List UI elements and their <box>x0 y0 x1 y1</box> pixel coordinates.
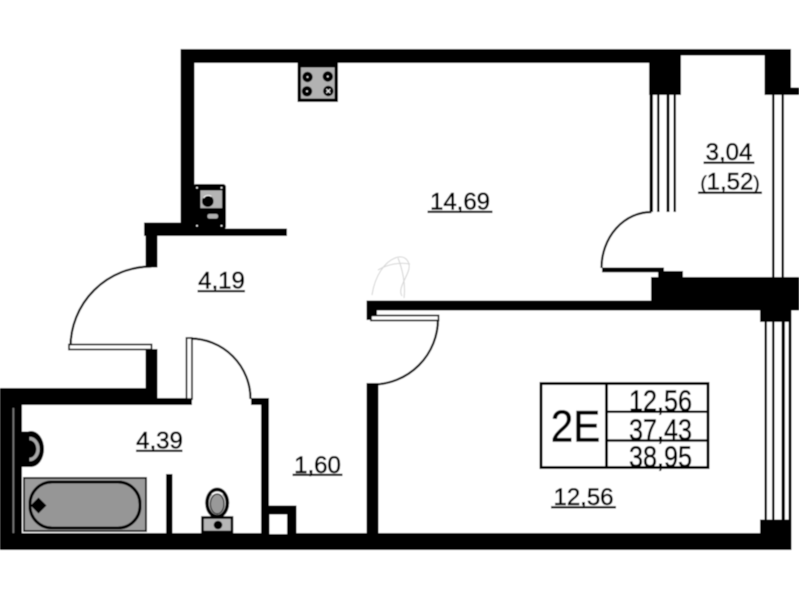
svg-text:38,95: 38,95 <box>629 440 692 474</box>
svg-text:2E: 2E <box>551 402 601 452</box>
svg-text:(1,52): (1,52) <box>700 169 759 196</box>
